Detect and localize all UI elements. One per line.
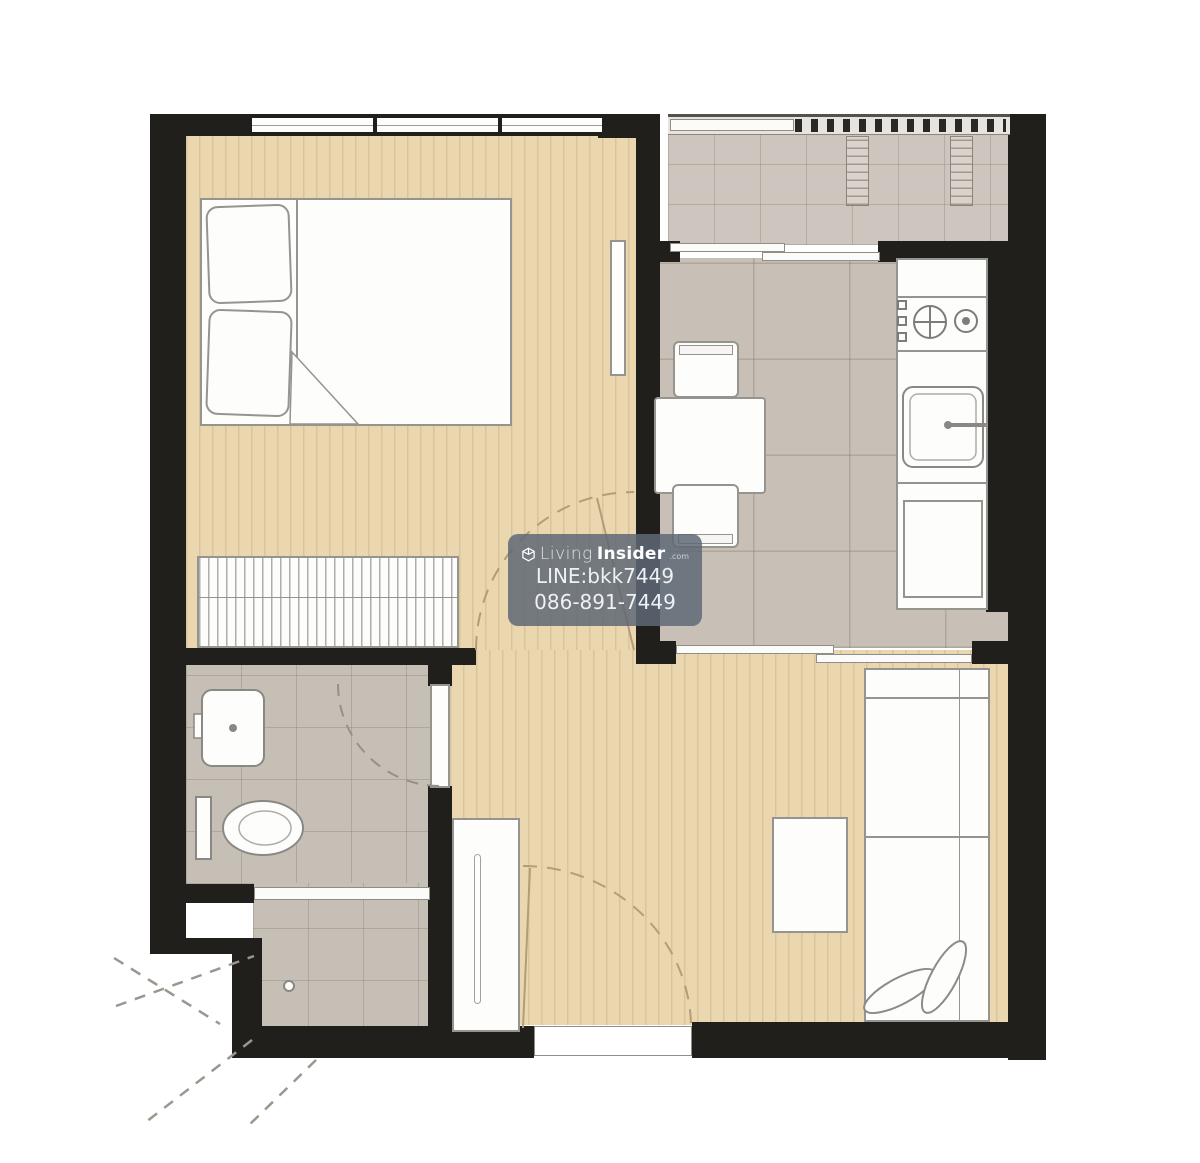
sofa [864,668,990,1022]
kitchen-living-sliding-door-panel [676,645,834,654]
bed-frame-line [296,200,298,424]
wall-shower-divider [186,884,254,903]
wall-stub-living-right [972,641,1010,664]
watermark-badge: LivingInsider.com LINE:bkk7449 086-891-7… [508,534,702,626]
bed-pillow [205,204,292,305]
watermark-brand: LivingInsider.com [521,546,689,563]
wall-left-outer [150,114,186,954]
window-glass-line [252,125,602,126]
dining-chair-back [679,345,733,355]
brand-insider: Insider [597,546,666,563]
balcony-sliding-door-panel [762,252,880,261]
wall-bathroom-right-upper [428,648,452,686]
balcony-sliding-door-panel [670,243,785,252]
balcony-rack [950,136,973,206]
brand-tld: .com [669,553,689,561]
wall-bathroom-right-lower [428,786,452,1058]
bedroom-wall-panel [610,240,626,376]
counter-section-line [898,350,986,352]
kitchen-lower-cabinet [903,500,983,598]
wall-bottom-right [692,1022,1046,1058]
coffee-table [772,817,848,933]
watermark-line-id: LINE:bkk7449 [536,564,674,589]
balcony-railing [668,114,1010,135]
shower-sliding-door [254,887,430,900]
entry-door-threshold [534,1026,692,1056]
kitchen-living-sliding-door-panel [816,654,972,663]
wardrobe [197,556,459,648]
sofa-backrest-line [959,670,961,1020]
bedroom-window [252,114,602,136]
sofa-cushion-line [866,836,988,838]
wardrobe-shelf-line [199,597,457,599]
cube-logo-icon [521,547,536,562]
balcony-railing-balusters [795,119,1006,132]
dining-chair [673,341,739,398]
sofa-armrest-line [866,697,988,699]
wall-counter-back [986,258,1010,612]
floor-plan: LivingInsider.com LINE:bkk7449 086-891-7… [0,0,1200,1163]
window-mullion [373,118,377,132]
watermark-phone: 086-891-7449 [534,590,676,615]
counter-section-line [898,296,986,298]
wall-stub-living-left [636,641,676,664]
bed-pillow [205,309,293,418]
window-mullion [498,118,502,132]
bathroom-floor [186,662,430,884]
wall-right-outer [1008,114,1046,1060]
cabinet-handle [474,854,481,1004]
hall-cabinet [452,818,520,1032]
shower-floor [253,883,431,1033]
counter-section-line [898,482,986,484]
bathroom-door-leaf [430,684,450,788]
balcony-railing-glass [670,119,794,131]
dining-table [654,397,766,494]
brand-living: Living [540,546,593,563]
balcony-rack [846,136,869,206]
